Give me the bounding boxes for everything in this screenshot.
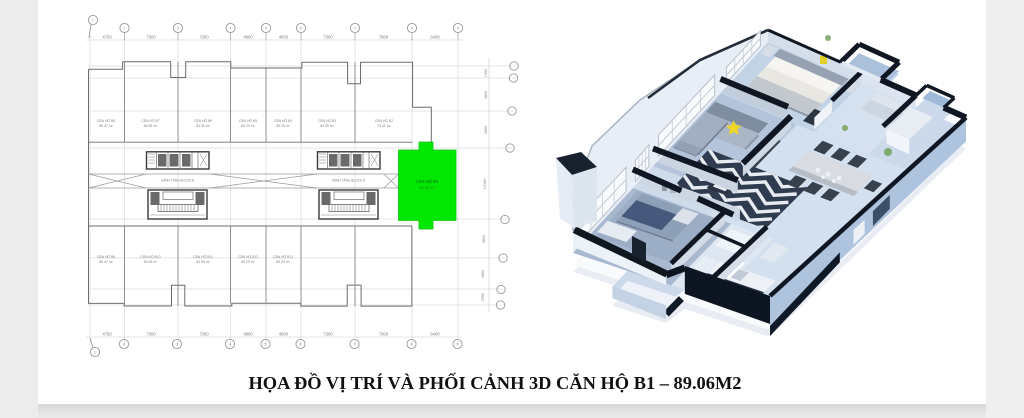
svg-text:85.29 m²: 85.29 m² xyxy=(241,124,255,128)
svg-text:84.95 m²: 84.95 m² xyxy=(144,124,158,128)
svg-text:CĂN HỘ B11: CĂN HỘ B11 xyxy=(193,254,213,259)
svg-text:7300: 7300 xyxy=(323,332,333,337)
svg-text:CĂN HỘ B7: CĂN HỘ B7 xyxy=(141,118,159,123)
svg-text:3: 3 xyxy=(177,26,179,30)
svg-text:5: 5 xyxy=(265,342,267,346)
svg-text:4650: 4650 xyxy=(484,91,488,99)
svg-text:9: 9 xyxy=(457,342,459,346)
svg-text:1: 1 xyxy=(94,350,96,354)
svg-text:4800: 4800 xyxy=(243,35,253,40)
svg-text:4800: 4800 xyxy=(279,35,289,40)
svg-text:7300: 7300 xyxy=(323,35,333,40)
svg-text:3600: 3600 xyxy=(484,126,488,134)
svg-text:CĂN HỘ B5: CĂN HỘ B5 xyxy=(239,118,257,123)
svg-text:73.41 m²: 73.41 m² xyxy=(377,124,391,128)
svg-text:10160: 10160 xyxy=(483,179,487,190)
svg-text:5: 5 xyxy=(265,26,267,30)
svg-text:89.06 m²: 89.06 m² xyxy=(419,185,435,190)
svg-text:4750: 4750 xyxy=(102,332,112,337)
svg-text:CĂN HỘ B3: CĂN HỘ B3 xyxy=(318,118,336,123)
svg-text:2: 2 xyxy=(123,342,125,346)
svg-text:7: 7 xyxy=(354,26,356,30)
svg-text:3: 3 xyxy=(176,342,178,346)
svg-text:7900: 7900 xyxy=(379,35,389,40)
svg-text:6400: 6400 xyxy=(430,332,440,337)
svg-text:7300: 7300 xyxy=(199,35,209,40)
svg-text:6400: 6400 xyxy=(430,35,440,40)
svg-text:4650: 4650 xyxy=(481,270,485,278)
svg-text:4: 4 xyxy=(230,26,232,30)
svg-text:7300: 7300 xyxy=(199,332,209,337)
svg-text:SẢNH TẦNG BLOCK A: SẢNH TẦNG BLOCK A xyxy=(161,178,195,183)
svg-text:CĂN HỘ B12: CĂN HỘ B12 xyxy=(238,254,258,259)
svg-text:CĂN HỘ B4: CĂN HỘ B4 xyxy=(274,118,292,123)
svg-text:85.29 m²: 85.29 m² xyxy=(276,124,290,128)
svg-text:2050: 2050 xyxy=(481,293,485,301)
svg-text:4800: 4800 xyxy=(279,332,289,337)
svg-text:7300: 7300 xyxy=(146,332,156,337)
svg-text:4800: 4800 xyxy=(243,332,253,337)
svg-text:7300: 7300 xyxy=(146,35,156,40)
svg-text:8: 8 xyxy=(411,26,413,30)
svg-text:CĂN HỘ B13: CĂN HỘ B13 xyxy=(273,254,293,259)
svg-text:CĂN HỘ B8: CĂN HỘ B8 xyxy=(97,118,115,123)
svg-text:85.47 m²: 85.47 m² xyxy=(99,260,113,264)
svg-text:3600: 3600 xyxy=(482,235,486,243)
svg-text:9: 9 xyxy=(457,26,459,30)
svg-text:6: 6 xyxy=(300,26,302,30)
svg-text:6: 6 xyxy=(300,342,302,346)
svg-text:SẢNH TẦNG BLOCK B: SẢNH TẦNG BLOCK B xyxy=(332,178,365,183)
svg-text:CĂN HỘ B10: CĂN HỘ B10 xyxy=(140,254,160,259)
svg-text:4: 4 xyxy=(229,342,231,346)
svg-text:7: 7 xyxy=(354,342,356,346)
svg-text:CĂN HỘ B6: CĂN HỘ B6 xyxy=(194,118,212,123)
svg-text:1350: 1350 xyxy=(484,69,488,77)
svg-text:85.29 m²: 85.29 m² xyxy=(241,260,255,264)
svg-text:85.29 m²: 85.29 m² xyxy=(276,260,290,264)
svg-text:84.95 m²: 84.95 m² xyxy=(196,260,210,264)
svg-text:2: 2 xyxy=(124,26,126,30)
svg-text:8: 8 xyxy=(411,342,413,346)
svg-text:85.47 m²: 85.47 m² xyxy=(99,124,113,128)
svg-text:7900: 7900 xyxy=(379,332,389,337)
svg-text:84.95 m²: 84.95 m² xyxy=(196,124,210,128)
svg-text:84.95 m²: 84.95 m² xyxy=(320,124,334,128)
svg-text:84.95 m²: 84.95 m² xyxy=(144,260,158,264)
svg-text:CĂN HỘ B1: CĂN HỘ B1 xyxy=(415,179,439,184)
svg-text:4750: 4750 xyxy=(102,35,112,40)
svg-text:1: 1 xyxy=(92,18,94,22)
svg-text:CĂN HỘ B9: CĂN HỘ B9 xyxy=(97,254,115,259)
svg-text:CĂN HỘ B2: CĂN HỘ B2 xyxy=(375,118,393,123)
